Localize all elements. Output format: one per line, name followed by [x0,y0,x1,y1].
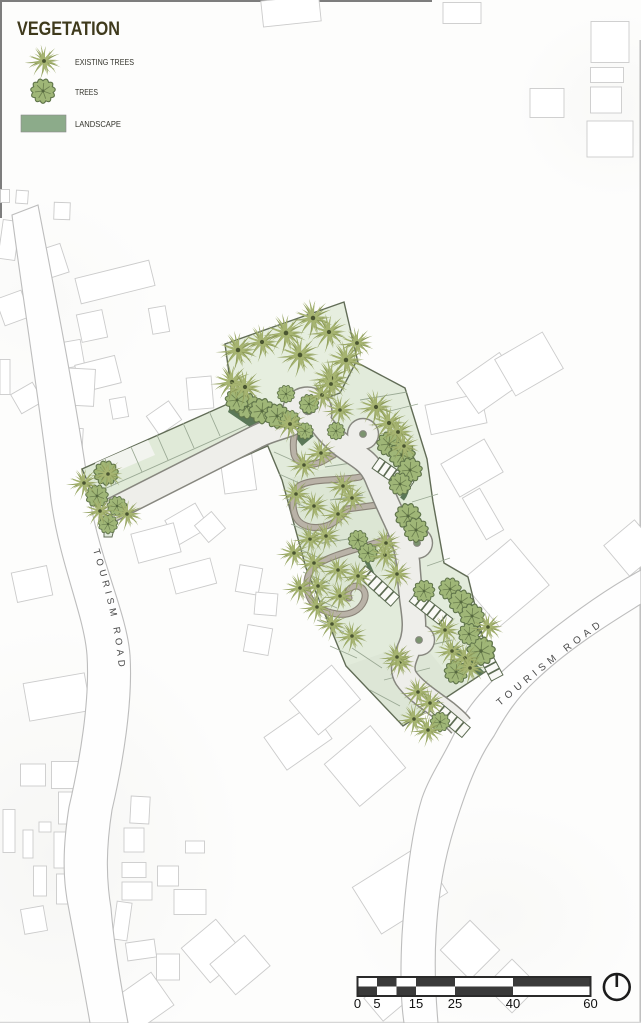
svg-text:VEGETATION: VEGETATION [17,19,120,40]
svg-text:25: 25 [448,996,462,1011]
svg-text:LANDSCAPE: LANDSCAPE [75,119,121,129]
svg-text:40: 40 [506,996,520,1011]
svg-text:0: 0 [354,996,361,1011]
svg-text:EXISTING TREES: EXISTING TREES [75,57,134,67]
svg-text:15: 15 [409,996,423,1011]
svg-text:TREES: TREES [75,87,98,97]
svg-text:60: 60 [583,996,597,1011]
svg-text:5: 5 [373,996,380,1011]
